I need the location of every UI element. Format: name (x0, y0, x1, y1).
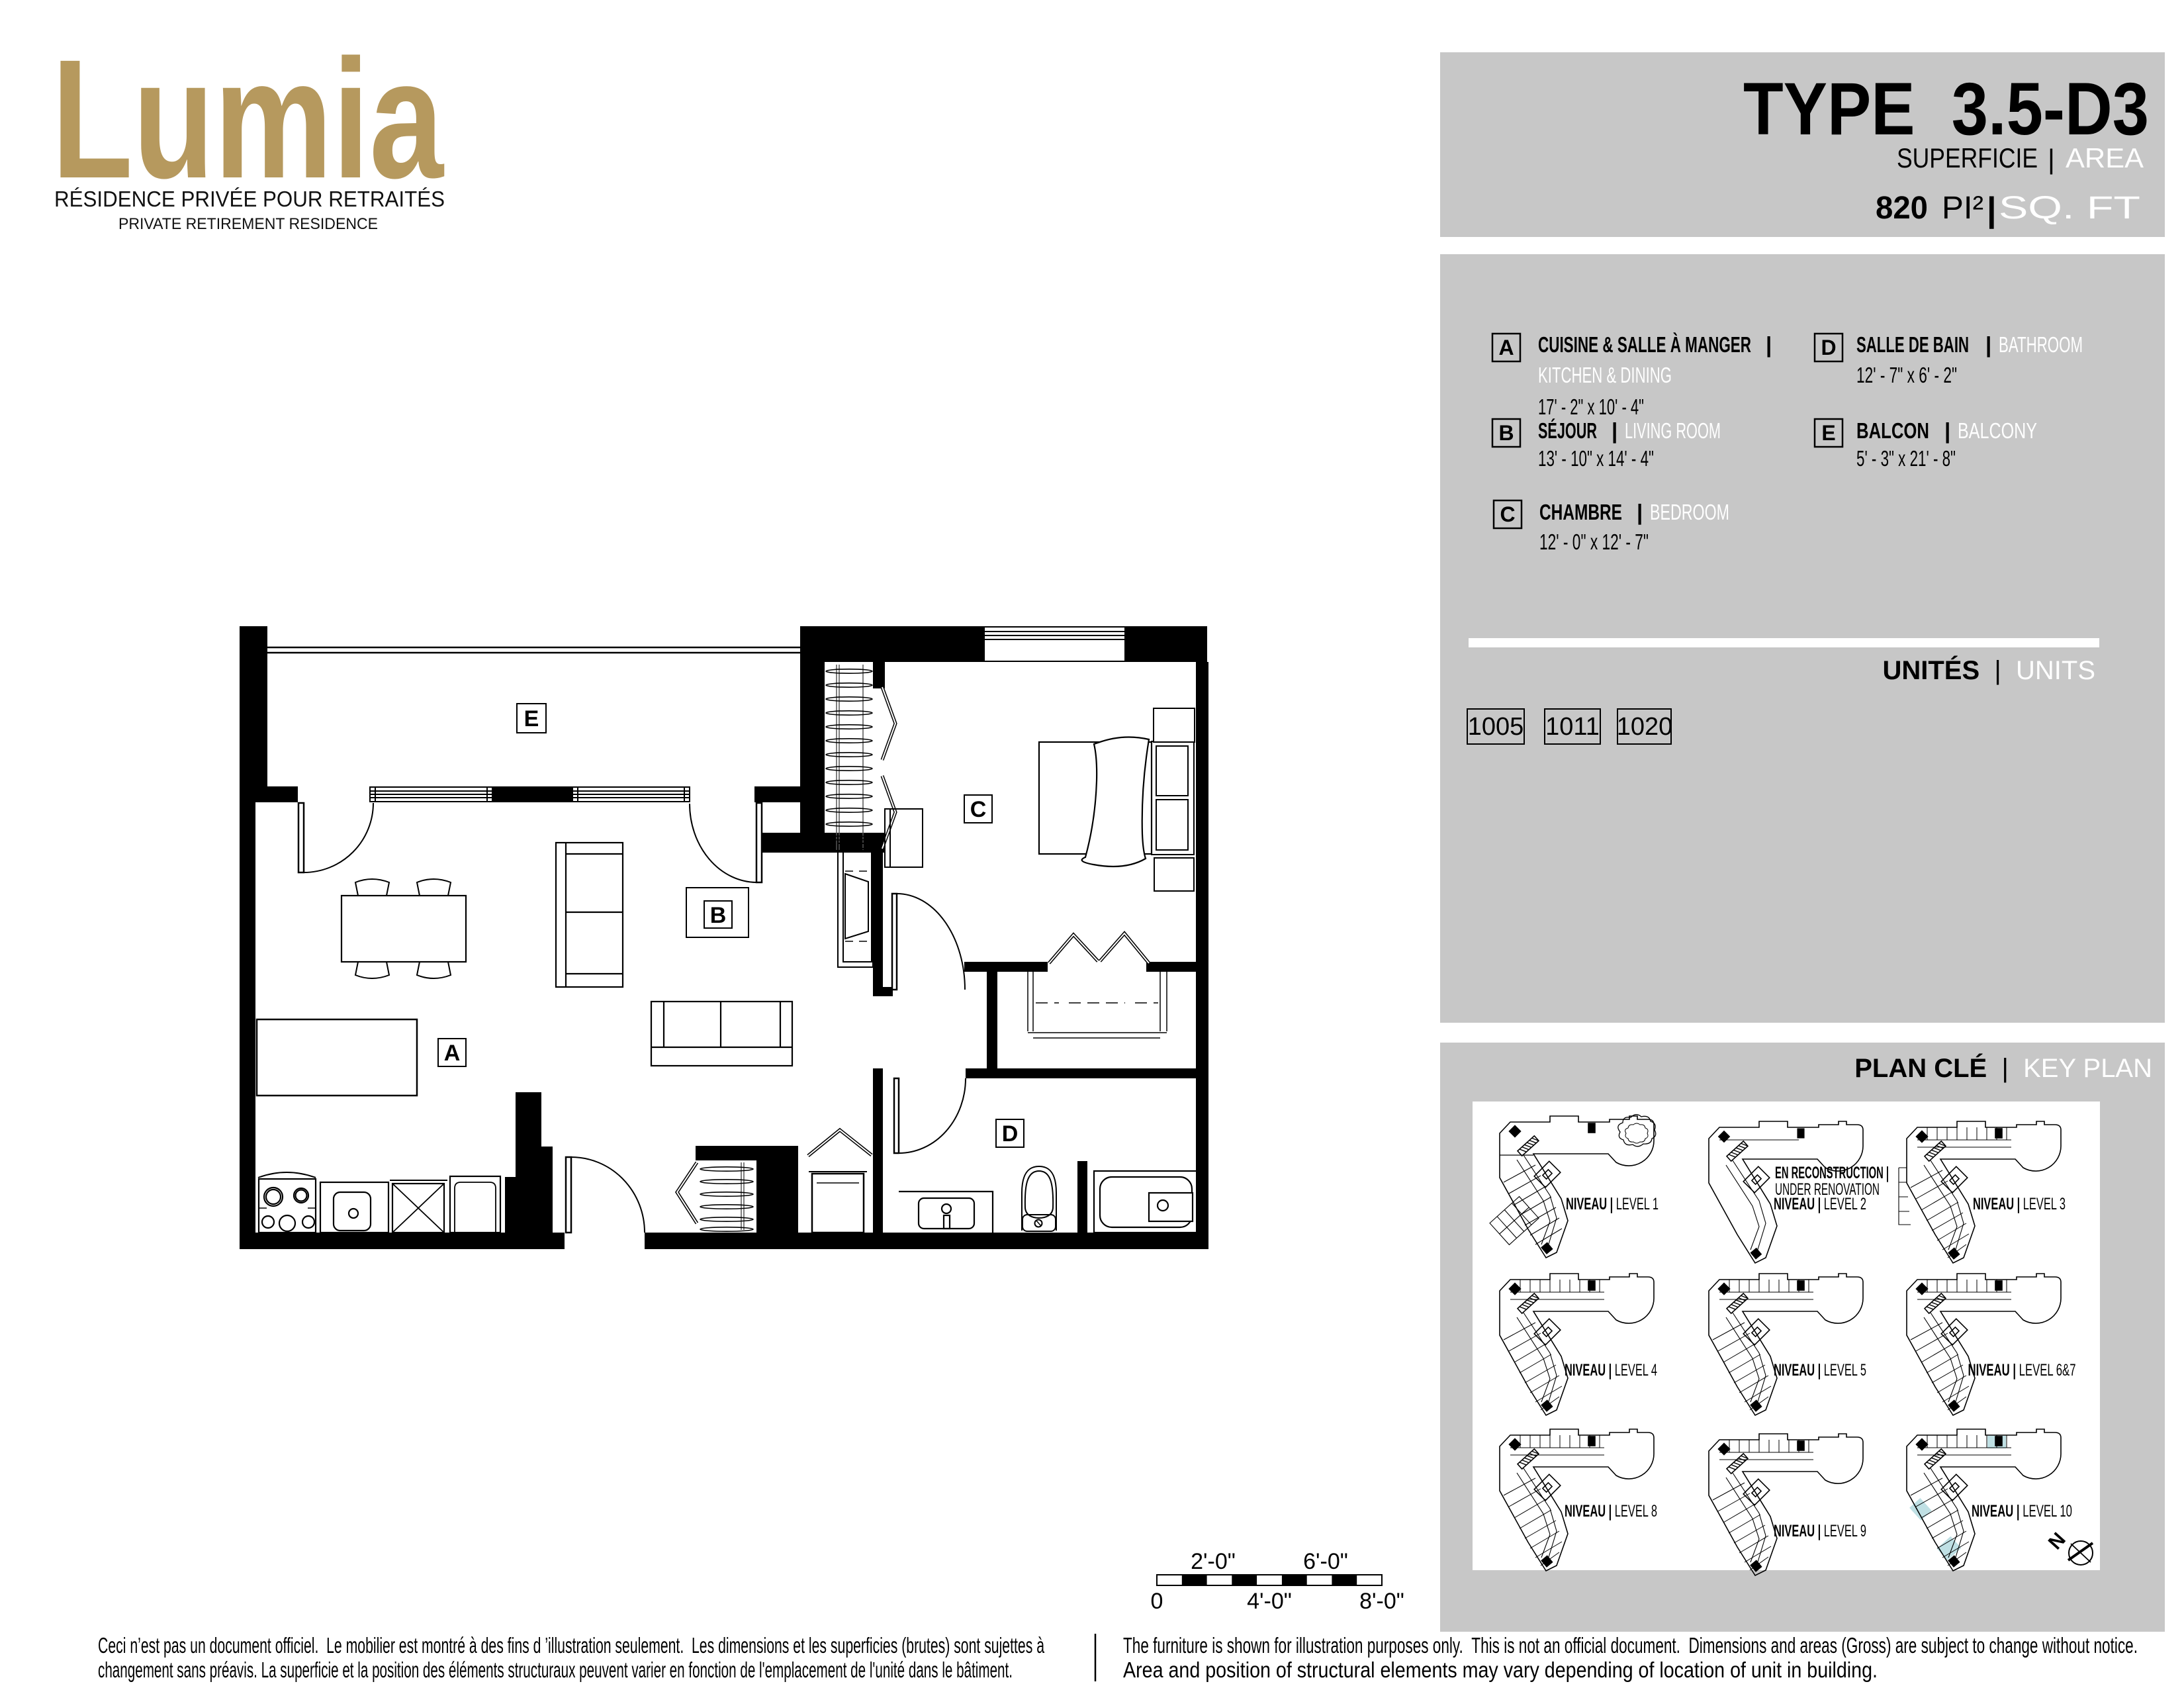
svg-text:TYPE 3.5-D3: TYPE 3.5-D3 (1743, 68, 2149, 150)
svg-text:0: 0 (1151, 1589, 1163, 1614)
svg-text:NIVEAU | LEVEL 3: NIVEAU | LEVEL 3 (1973, 1195, 2066, 1213)
svg-text:C: C (1500, 502, 1515, 526)
svg-text:12' - 7" x 6' - 2": 12' - 7" x 6' - 2" (1856, 363, 1957, 387)
svg-text:KITCHEN & DINING: KITCHEN & DINING (1538, 363, 1672, 387)
svg-text:AREA: AREA (2066, 142, 2144, 173)
svg-text:|: | (1944, 418, 1950, 443)
svg-text:BALCONY: BALCONY (1958, 418, 2037, 443)
svg-text:PLAN CLÉ | KEY PLAN: PLAN CLÉ | KEY PLAN (1854, 1053, 2152, 1083)
svg-text:Area and position of structura: Area and position of structural elements… (1123, 1658, 1878, 1682)
svg-text:|: | (1985, 332, 1991, 357)
svg-text:17' - 2" x 10' - 4": 17' - 2" x 10' - 4" (1538, 395, 1644, 419)
svg-text:Lumia: Lumia (52, 24, 444, 214)
svg-text:UNITÉS | UNITS: UNITÉS | UNITS (1882, 655, 2095, 685)
svg-text:6'-0": 6'-0" (1303, 1549, 1348, 1574)
svg-text:E: E (524, 706, 539, 731)
svg-text:1011: 1011 (1545, 713, 1600, 741)
svg-text:13' - 10" x 14' - 4": 13' - 10" x 14' - 4" (1538, 446, 1654, 471)
svg-text:SALLE DE BAIN: SALLE DE BAIN (1856, 332, 1969, 357)
svg-text:A: A (444, 1041, 461, 1066)
svg-text:SUPERFICIE: SUPERFICIE (1897, 142, 2038, 173)
svg-text:1020: 1020 (1617, 713, 1673, 741)
svg-text:2'-0": 2'-0" (1191, 1549, 1236, 1574)
svg-text:NIVEAU | LEVEL 5: NIVEAU | LEVEL 5 (1774, 1361, 1866, 1380)
svg-text:E: E (1821, 421, 1835, 445)
svg-text:NIVEAU | LEVEL 4: NIVEAU | LEVEL 4 (1565, 1361, 1657, 1380)
svg-text:LIVING ROOM: LIVING ROOM (1625, 418, 1721, 443)
svg-text:820: 820 (1876, 191, 1928, 226)
svg-text:5' - 3" x 21' - 8": 5' - 3" x 21' - 8" (1856, 446, 1956, 471)
svg-text:C: C (970, 797, 987, 822)
svg-text:|: | (1766, 332, 1772, 357)
svg-text:PRIVATE RETIREMENT RESIDENCE: PRIVATE RETIREMENT RESIDENCE (118, 215, 378, 233)
svg-text:NIVEAU | LEVEL 6&7: NIVEAU | LEVEL 6&7 (1968, 1361, 2076, 1380)
svg-text:4'-0": 4'-0" (1247, 1589, 1292, 1614)
svg-text:|: | (1612, 418, 1617, 443)
svg-text:CUISINE & SALLE À MANGER: CUISINE & SALLE À MANGER (1538, 332, 1751, 357)
svg-text:The furniture is shown for ill: The furniture is shown for illustration … (1123, 1633, 2138, 1658)
svg-text:SÉJOUR: SÉJOUR (1538, 418, 1597, 443)
svg-text:D: D (1002, 1121, 1019, 1147)
svg-text:|: | (1987, 191, 1997, 229)
svg-text:BATHROOM: BATHROOM (1999, 332, 2083, 357)
svg-text:NIVEAU | LEVEL 8: NIVEAU | LEVEL 8 (1565, 1502, 1657, 1521)
svg-text:changement sans préavis. La su: changement sans préavis. La superficie e… (98, 1658, 1013, 1682)
svg-text:A: A (1498, 336, 1514, 359)
svg-text:RÉSIDENCE PRIVÉE POUR RETRAITÉ: RÉSIDENCE PRIVÉE POUR RETRAITÉS (54, 187, 445, 211)
svg-text:BEDROOM: BEDROOM (1650, 500, 1729, 524)
svg-text:PI²: PI² (1942, 191, 1983, 226)
svg-text:BALCON: BALCON (1856, 418, 1929, 443)
svg-text:Ceci n’est pas un document off: Ceci n’est pas un document officiel. Le … (98, 1633, 1044, 1658)
svg-text:12' - 0" x 12' - 7": 12' - 0" x 12' - 7" (1539, 530, 1649, 554)
svg-text:NIVEAU | LEVEL 1: NIVEAU | LEVEL 1 (1566, 1195, 1659, 1213)
svg-text:NIVEAU | LEVEL 10: NIVEAU | LEVEL 10 (1972, 1502, 2072, 1521)
svg-text:NIVEAU | LEVEL 9: NIVEAU | LEVEL 9 (1774, 1522, 1866, 1540)
svg-text:|: | (2048, 144, 2055, 175)
svg-text:|: | (1637, 500, 1643, 524)
svg-text:CHAMBRE: CHAMBRE (1539, 500, 1622, 524)
svg-text:D: D (1821, 336, 1836, 359)
svg-text:8'-0": 8'-0" (1359, 1589, 1404, 1614)
svg-text:SQ. FT: SQ. FT (1999, 191, 2140, 226)
svg-text:1005: 1005 (1468, 713, 1524, 741)
svg-text:B: B (710, 903, 727, 928)
svg-text:EN RECONSTRUCTION |: EN RECONSTRUCTION | (1775, 1164, 1889, 1182)
svg-text:NIVEAU | LEVEL 2: NIVEAU | LEVEL 2 (1774, 1195, 1866, 1213)
svg-text:B: B (1498, 421, 1514, 445)
